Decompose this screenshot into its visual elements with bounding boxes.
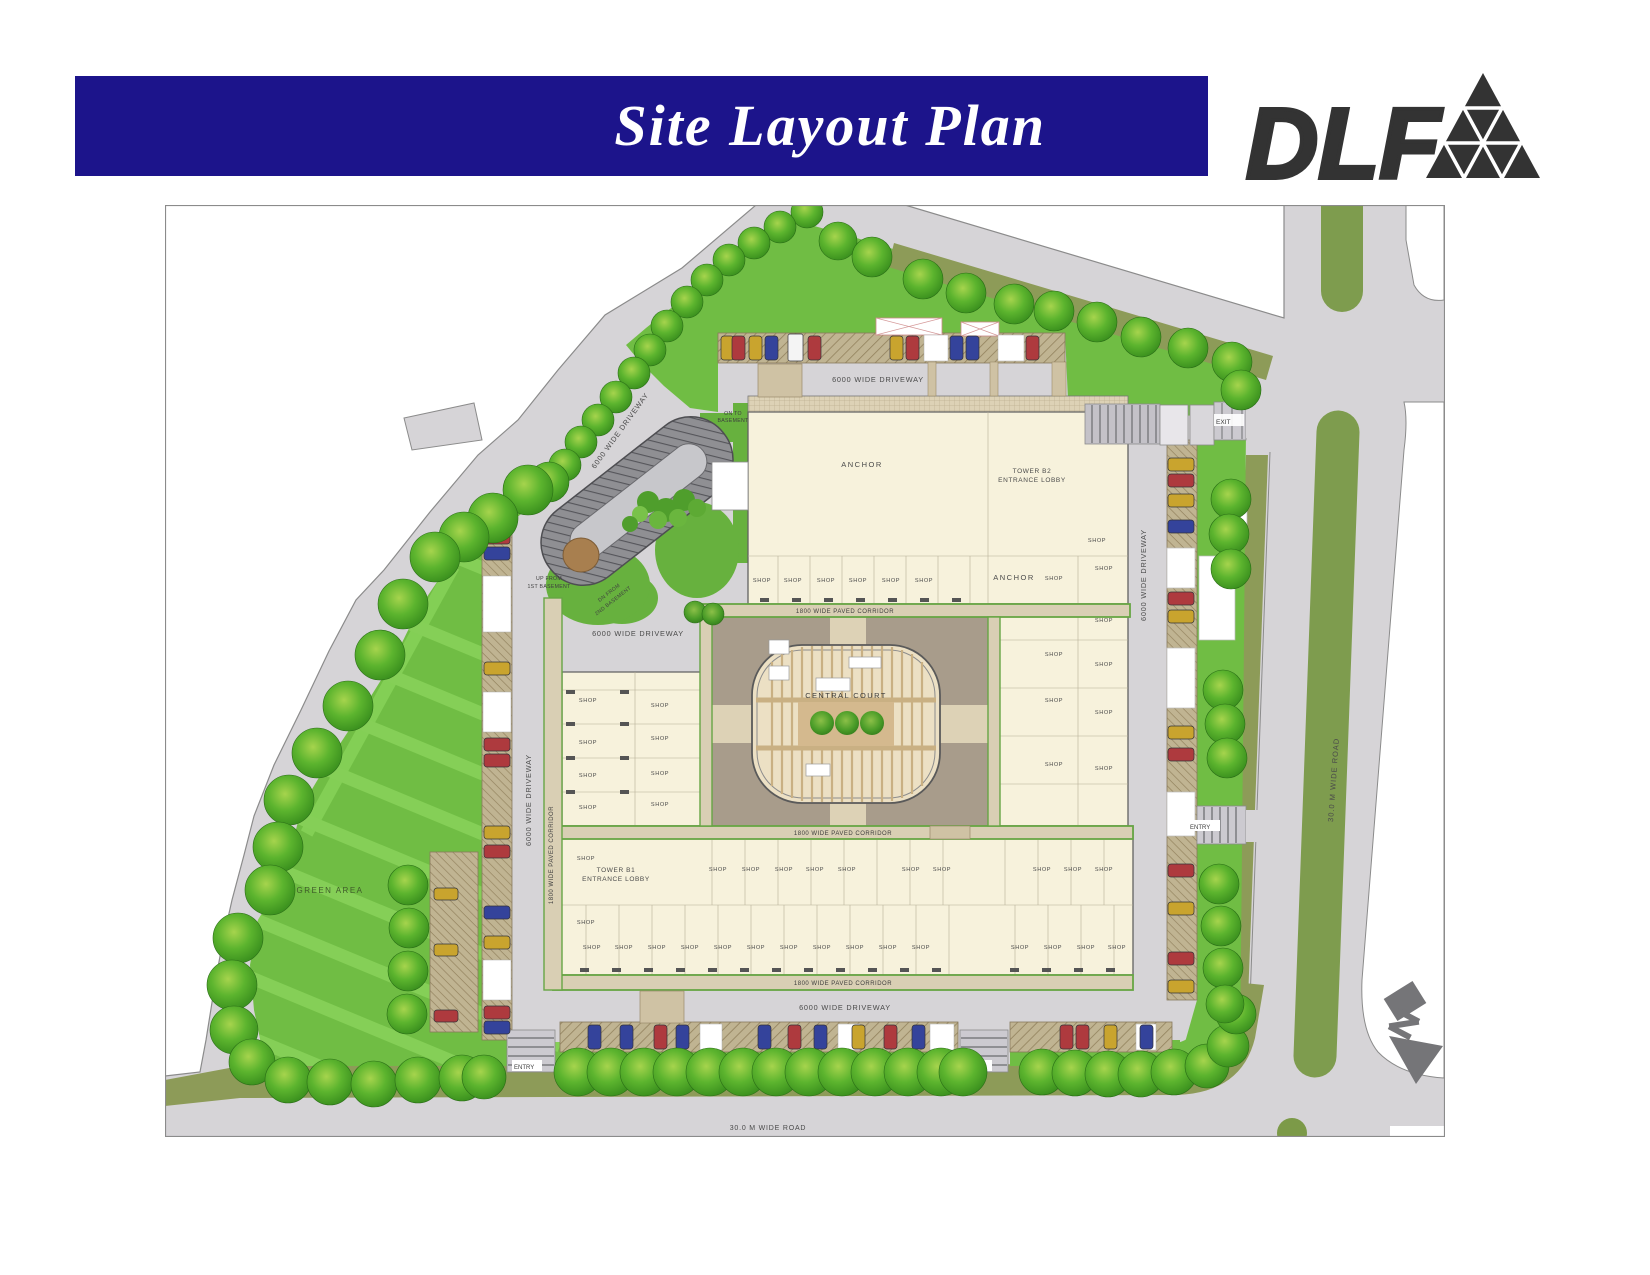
- svg-text:CENTRAL COURT: CENTRAL COURT: [805, 691, 887, 700]
- svg-text:SHOP: SHOP: [846, 945, 864, 951]
- svg-text:6000 WIDE DRIVEWAY: 6000 WIDE DRIVEWAY: [592, 629, 684, 638]
- svg-text:SHOP: SHOP: [747, 945, 765, 951]
- svg-text:SHOP: SHOP: [742, 867, 760, 873]
- svg-text:SHOP: SHOP: [681, 945, 699, 951]
- svg-text:DLF: DLF: [1246, 88, 1443, 190]
- svg-text:SHOP: SHOP: [915, 578, 933, 584]
- svg-text:GREEN AREA: GREEN AREA: [296, 886, 363, 895]
- svg-text:TOWER B1: TOWER B1: [597, 867, 636, 874]
- svg-text:SHOP: SHOP: [651, 703, 669, 709]
- svg-text:ANCHOR: ANCHOR: [841, 460, 883, 469]
- svg-text:SHOP: SHOP: [838, 867, 856, 873]
- svg-text:SHOP: SHOP: [651, 736, 669, 742]
- svg-text:SHOP: SHOP: [577, 920, 595, 926]
- svg-text:SHOP: SHOP: [1064, 867, 1082, 873]
- svg-text:EXIT: EXIT: [1216, 419, 1230, 426]
- svg-text:SHOP: SHOP: [753, 578, 771, 584]
- svg-text:SHOP: SHOP: [780, 945, 798, 951]
- svg-text:SHOP: SHOP: [583, 945, 601, 951]
- svg-text:ENTRY: ENTRY: [514, 1065, 534, 1071]
- svg-text:SHOP: SHOP: [709, 867, 727, 873]
- svg-text:SHOP: SHOP: [615, 945, 633, 951]
- svg-text:SHOP: SHOP: [1095, 662, 1113, 668]
- svg-text:SHOP: SHOP: [651, 802, 669, 808]
- svg-text:SHOP: SHOP: [775, 867, 793, 873]
- svg-text:SHOP: SHOP: [1088, 538, 1106, 544]
- svg-text:SHOP: SHOP: [784, 578, 802, 584]
- svg-text:6000 WIDE DRIVEWAY: 6000 WIDE DRIVEWAY: [799, 1003, 891, 1012]
- svg-text:TOWER B2: TOWER B2: [1013, 468, 1052, 475]
- svg-text:SHOP: SHOP: [714, 945, 732, 951]
- svg-text:SHOP: SHOP: [651, 771, 669, 777]
- svg-text:6000 WIDE DRIVEWAY: 6000 WIDE DRIVEWAY: [832, 375, 924, 384]
- svg-text:SHOP: SHOP: [1045, 698, 1063, 704]
- svg-text:SHOP: SHOP: [912, 945, 930, 951]
- svg-text:SHOP: SHOP: [1044, 945, 1062, 951]
- svg-text:SHOP: SHOP: [1045, 652, 1063, 658]
- svg-text:SHOP: SHOP: [813, 945, 831, 951]
- svg-text:SHOP: SHOP: [806, 867, 824, 873]
- svg-text:1800 WIDE PAVED CORRIDOR: 1800 WIDE PAVED CORRIDOR: [794, 981, 892, 987]
- svg-text:ON TO: ON TO: [724, 411, 742, 417]
- svg-text:1ST BASEMENT: 1ST BASEMENT: [528, 584, 572, 590]
- svg-text:SHOP: SHOP: [579, 740, 597, 746]
- svg-text:BASEMENT: BASEMENT: [718, 418, 749, 424]
- svg-text:1800 WIDE PAVED CORRIDOR: 1800 WIDE PAVED CORRIDOR: [794, 831, 892, 837]
- svg-text:UP FROM: UP FROM: [536, 576, 562, 582]
- svg-text:SHOP: SHOP: [1033, 867, 1051, 873]
- svg-text:SHOP: SHOP: [577, 856, 595, 862]
- svg-text:30.0 M WIDE ROAD: 30.0 M WIDE ROAD: [730, 1125, 807, 1132]
- svg-text:ANCHOR: ANCHOR: [993, 573, 1035, 582]
- svg-text:SHOP: SHOP: [579, 773, 597, 779]
- svg-text:SHOP: SHOP: [1095, 867, 1113, 873]
- svg-text:SHOP: SHOP: [579, 805, 597, 811]
- svg-text:1800 WIDE PAVED CORRIDOR: 1800 WIDE PAVED CORRIDOR: [796, 609, 894, 615]
- svg-text:SHOP: SHOP: [882, 578, 900, 584]
- svg-text:ENTRANCE LOBBY: ENTRANCE LOBBY: [998, 477, 1066, 484]
- svg-text:6000 WIDE DRIVEWAY: 6000 WIDE DRIVEWAY: [1139, 529, 1148, 621]
- svg-text:SHOP: SHOP: [1095, 766, 1113, 772]
- svg-text:SHOP: SHOP: [579, 698, 597, 704]
- svg-text:SHOP: SHOP: [879, 945, 897, 951]
- svg-text:SHOP: SHOP: [1077, 945, 1095, 951]
- svg-text:SHOP: SHOP: [817, 578, 835, 584]
- svg-text:SHOP: SHOP: [933, 867, 951, 873]
- svg-text:SHOP: SHOP: [1095, 710, 1113, 716]
- svg-text:1800 WIDE PAVED CORRIDOR: 1800 WIDE PAVED CORRIDOR: [549, 806, 555, 904]
- svg-text:SHOP: SHOP: [1045, 576, 1063, 582]
- svg-text:ENTRY: ENTRY: [1190, 825, 1210, 831]
- svg-text:ENTRANCE LOBBY: ENTRANCE LOBBY: [582, 876, 650, 883]
- svg-text:SHOP: SHOP: [1095, 618, 1113, 624]
- svg-text:SHOP: SHOP: [1011, 945, 1029, 951]
- svg-text:SHOP: SHOP: [902, 867, 920, 873]
- svg-text:SHOP: SHOP: [1095, 566, 1113, 572]
- svg-text:SHOP: SHOP: [1108, 945, 1126, 951]
- svg-text:6000 WIDE DRIVEWAY: 6000 WIDE DRIVEWAY: [524, 754, 533, 846]
- svg-text:SHOP: SHOP: [648, 945, 666, 951]
- svg-text:SHOP: SHOP: [849, 578, 867, 584]
- svg-text:SHOP: SHOP: [1045, 762, 1063, 768]
